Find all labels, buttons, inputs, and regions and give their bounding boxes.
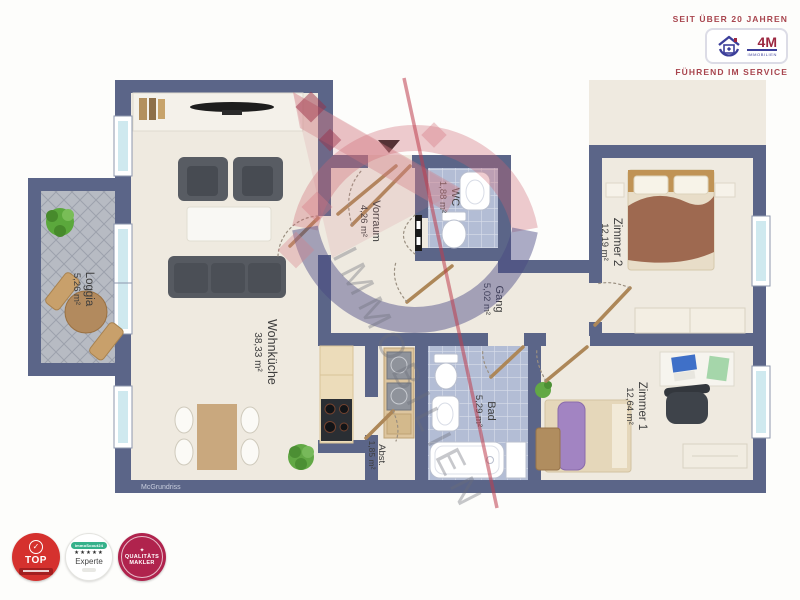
armchair (178, 157, 228, 201)
badge-immoscout-experte: ImmoScout24 ★★★★★ Experte (65, 533, 113, 581)
desk-mat (706, 356, 729, 382)
label-abst: Abst. 1,85 m² (367, 441, 387, 470)
kitchen-counter (320, 346, 353, 443)
window-zimmer2 (752, 216, 770, 286)
svg-text:Zimmer 1: Zimmer 1 (636, 382, 648, 431)
brand-tagline-bottom: FÜHREND IM SERVICE (598, 67, 788, 77)
svg-text:Loggia: Loggia (83, 272, 95, 307)
immoscout-pill: ImmoScout24 (71, 542, 107, 549)
svg-text:Bad: Bad (485, 401, 497, 421)
armchair (233, 157, 283, 201)
bad-toilet (434, 354, 458, 389)
plant (288, 444, 314, 470)
floorplan-credit: McGrundriss (141, 484, 181, 491)
house-icon (716, 34, 742, 58)
badge-top-makler: ✓ TOP (12, 533, 60, 581)
brand-logo: 4M IMMOBILIEN (705, 28, 788, 64)
dresser (683, 444, 747, 468)
wardrobe (635, 308, 745, 333)
badge-ribbon (19, 568, 53, 575)
svg-text:12,19 m²: 12,19 m² (599, 223, 610, 261)
logo-text: 4M (747, 36, 777, 51)
badge-qualitaetsmakler: ✦ QUALITÄTS MAKLER (118, 533, 166, 581)
brand-header: SEIT ÜBER 20 JAHREN 4M IMMOBILIEN FÜHREN… (598, 14, 788, 77)
award-badges: ✓ TOP ImmoScout24 ★★★★★ Experte ✦ QUALIT… (12, 533, 166, 581)
window-left-bottom (114, 386, 132, 448)
window-left-top (114, 116, 132, 176)
side-chair (536, 428, 560, 470)
sofa (168, 256, 286, 298)
star-rating: ★★★★★ (74, 550, 104, 556)
window-loggia-glazing (114, 224, 132, 334)
nightstand (715, 183, 735, 197)
logo-subtext: IMMOBILIEN (747, 52, 777, 57)
svg-text:12,64 m²: 12,64 m² (624, 387, 635, 425)
office-chair (664, 384, 711, 424)
svg-text:5,26 m²: 5,26 m² (71, 273, 82, 305)
floorplan-page: Loggia 5,26 m² Wohnküche 38,33 m² Vorrau… (0, 0, 800, 600)
svg-text:Zimmer 2: Zimmer 2 (611, 218, 623, 267)
brand-tagline-top: SEIT ÜBER 20 JAHREN (598, 14, 788, 24)
wc-toilet (442, 212, 466, 248)
coffee-table (187, 207, 271, 241)
books (139, 98, 165, 120)
dining-table (197, 404, 237, 470)
nightstand (606, 183, 624, 197)
floorplan-drawing: Loggia 5,26 m² Wohnküche 38,33 m² Vorrau… (0, 0, 800, 600)
double-bed (628, 170, 714, 270)
check-icon: ✓ (29, 540, 43, 554)
badge-year (82, 568, 96, 572)
window-zimmer1 (752, 366, 770, 438)
svg-text:Wohnküche: Wohnküche (265, 319, 279, 385)
shower-panel (506, 442, 526, 478)
svg-text:38,33 m²: 38,33 m² (252, 332, 263, 372)
wc-door (415, 215, 422, 251)
desk (660, 352, 734, 386)
svg-text:1,85 m²: 1,85 m² (367, 441, 377, 470)
